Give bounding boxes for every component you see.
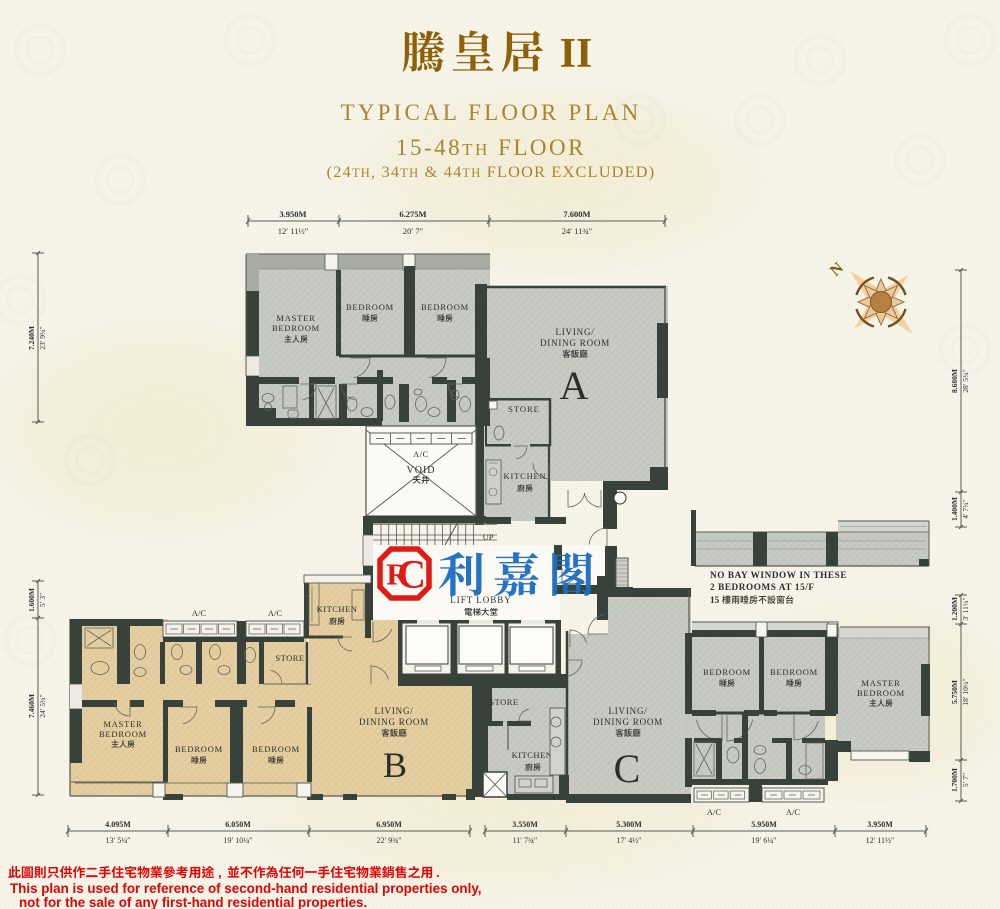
svg-text:STORE: STORE: [508, 404, 540, 414]
svg-text:18′ 10¼″: 18′ 10¼″: [961, 678, 970, 705]
svg-text:DINING ROOM: DINING ROOM: [540, 338, 610, 348]
svg-text:II: II: [560, 31, 593, 77]
svg-text:22′ 9¾″: 22′ 9¾″: [376, 836, 401, 845]
svg-text:MASTER: MASTER: [276, 313, 315, 323]
svg-text:BEDROOM: BEDROOM: [703, 667, 751, 677]
svg-text:23′ 9¾″: 23′ 9¾″: [38, 326, 47, 350]
svg-text:12′ 11½″: 12′ 11½″: [866, 836, 895, 845]
svg-text:19′ 6¼″: 19′ 6¼″: [751, 836, 776, 845]
svg-text:A/C: A/C: [413, 449, 429, 459]
svg-text:MASTER: MASTER: [103, 719, 142, 729]
svg-text:B: B: [383, 745, 407, 785]
svg-text:DINING ROOM: DINING ROOM: [593, 717, 663, 727]
svg-text:3.950M: 3.950M: [279, 209, 306, 219]
svg-text:6.050M: 6.050M: [225, 820, 251, 829]
svg-text:(24TH, 34TH & 44TH FLOOR EXCLU: (24TH, 34TH & 44TH FLOOR EXCLUDED): [327, 162, 656, 181]
svg-text:24′ 11¾″: 24′ 11¾″: [562, 226, 593, 236]
svg-text:BEDROOM: BEDROOM: [346, 302, 394, 312]
svg-text:KITCHEN: KITCHEN: [512, 750, 553, 760]
svg-text:STORE: STORE: [489, 697, 518, 707]
svg-text:8.680M: 8.680M: [950, 369, 959, 393]
svg-text:1.600M: 1.600M: [27, 588, 36, 612]
svg-text:not for the sale of any first-: not for the sale of any first-hand resid…: [19, 895, 367, 909]
svg-text:UP: UP: [483, 532, 494, 542]
svg-text:3.950M: 3.950M: [867, 820, 893, 829]
svg-text:6.275M: 6.275M: [399, 209, 426, 219]
svg-text:3.550M: 3.550M: [512, 820, 538, 829]
svg-text:KITCHEN: KITCHEN: [504, 471, 547, 481]
svg-text:TYPICAL FLOOR PLAN: TYPICAL FLOOR PLAN: [341, 100, 642, 125]
svg-text:A/C: A/C: [707, 807, 722, 817]
svg-text:,: ,: [218, 865, 222, 880]
svg-text:.: .: [436, 865, 440, 880]
svg-text:LIVING/: LIVING/: [374, 706, 413, 716]
svg-text:This plan is used for referenc: This plan is used for reference of secon…: [10, 881, 482, 896]
svg-text:LIVING/: LIVING/: [608, 706, 647, 716]
svg-text:7.460M: 7.460M: [27, 694, 36, 718]
svg-text:A/C: A/C: [192, 608, 207, 618]
svg-text:BEDROOM: BEDROOM: [252, 744, 300, 754]
svg-text:BEDROOM: BEDROOM: [272, 323, 320, 333]
svg-text:15: 15: [710, 595, 720, 605]
svg-text:KITCHEN: KITCHEN: [317, 604, 358, 614]
svg-text:5.750M: 5.750M: [950, 680, 959, 704]
svg-text:7.240M: 7.240M: [27, 326, 36, 350]
svg-text:5.300M: 5.300M: [616, 820, 642, 829]
svg-text:BEDROOM: BEDROOM: [857, 688, 905, 698]
svg-text:NO BAY WINDOW IN THESE: NO BAY WINDOW IN THESE: [710, 570, 847, 580]
svg-text:5′ 3″: 5′ 3″: [38, 593, 47, 607]
svg-text:STORE: STORE: [275, 653, 304, 663]
svg-text:20′ 7″: 20′ 7″: [403, 226, 424, 236]
svg-text:19′ 10¼″: 19′ 10¼″: [223, 836, 252, 845]
svg-text:A: A: [560, 363, 589, 408]
svg-text:BEDROOM: BEDROOM: [770, 667, 818, 677]
svg-text:C: C: [614, 746, 641, 791]
svg-text:1.400M: 1.400M: [950, 497, 959, 521]
svg-text:DINING ROOM: DINING ROOM: [359, 717, 429, 727]
svg-text:4.095M: 4.095M: [105, 820, 131, 829]
svg-text:BEDROOM: BEDROOM: [421, 302, 469, 312]
svg-text:12′ 11½″: 12′ 11½″: [278, 226, 309, 236]
svg-text:BEDROOM: BEDROOM: [99, 729, 147, 739]
svg-text:BEDROOM: BEDROOM: [175, 744, 223, 754]
svg-text:5′ 7″: 5′ 7″: [961, 773, 970, 787]
svg-text:4′ 7¼″: 4′ 7¼″: [961, 499, 970, 519]
svg-text:6.950M: 6.950M: [376, 820, 402, 829]
svg-text:A/C: A/C: [268, 608, 283, 618]
svg-text:15-48TH FLOOR: 15-48TH FLOOR: [396, 135, 586, 160]
svg-text:A/C: A/C: [786, 807, 801, 817]
svg-text:2 BEDROOMS AT 15/F: 2 BEDROOMS AT 15/F: [710, 582, 815, 592]
svg-text:3′ 11¼″: 3′ 11¼″: [961, 597, 970, 620]
svg-text:1.200M: 1.200M: [950, 597, 959, 621]
svg-text:17′ 4½″: 17′ 4½″: [616, 836, 641, 845]
svg-text:5.950M: 5.950M: [751, 820, 777, 829]
svg-text:LIVING/: LIVING/: [555, 327, 594, 337]
svg-text:MASTER: MASTER: [861, 678, 900, 688]
svg-text:R: R: [386, 557, 409, 592]
svg-text:13′ 5¼″: 13′ 5¼″: [105, 836, 130, 845]
svg-text:24′ 5¾″: 24′ 5¾″: [38, 694, 47, 718]
svg-text:7.600M: 7.600M: [563, 209, 590, 219]
svg-text:11′ 7¾″: 11′ 7¾″: [513, 836, 538, 845]
svg-text:28′ 5¾″: 28′ 5¾″: [961, 369, 970, 393]
svg-text:VOID: VOID: [407, 465, 436, 476]
svg-text:LIFT LOBBY: LIFT LOBBY: [450, 595, 512, 605]
svg-text:1.700M: 1.700M: [950, 768, 959, 792]
